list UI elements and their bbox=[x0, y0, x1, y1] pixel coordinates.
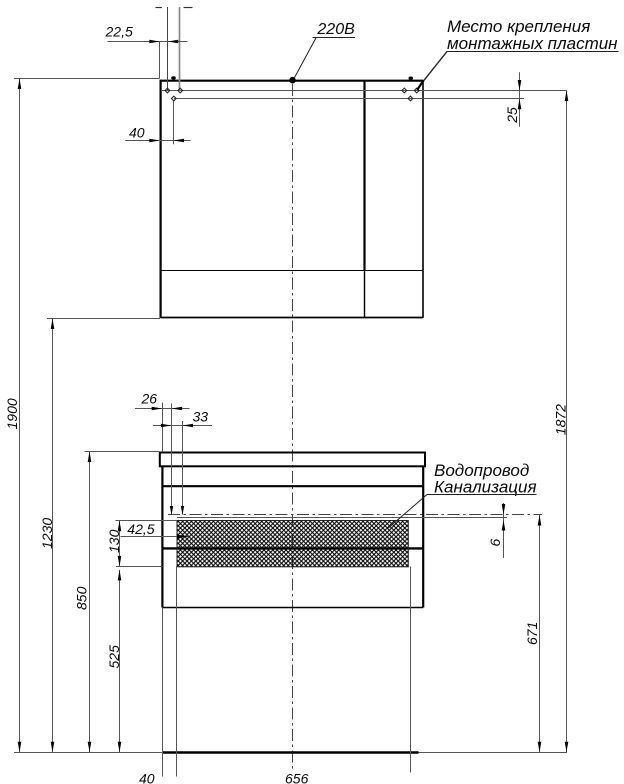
svg-text:40: 40 bbox=[129, 125, 145, 141]
svg-text:40: 40 bbox=[139, 771, 155, 784]
svg-text:33: 33 bbox=[193, 408, 209, 424]
svg-text:525: 525 bbox=[106, 645, 122, 669]
svg-text:850: 850 bbox=[74, 586, 90, 610]
svg-text:монтажных пластин: монтажных пластин bbox=[447, 34, 618, 53]
svg-text:671: 671 bbox=[524, 622, 540, 645]
svg-text:1900: 1900 bbox=[4, 398, 20, 429]
svg-text:6: 6 bbox=[487, 539, 503, 547]
svg-text:130: 130 bbox=[106, 529, 122, 553]
svg-text:Канализация: Канализация bbox=[434, 478, 537, 497]
svg-text:25: 25 bbox=[504, 107, 520, 124]
svg-text:26: 26 bbox=[141, 390, 158, 406]
svg-text:656: 656 bbox=[285, 771, 309, 784]
svg-text:1872: 1872 bbox=[552, 404, 568, 435]
svg-text:22,5: 22,5 bbox=[105, 24, 133, 40]
svg-text:220В: 220В bbox=[316, 21, 355, 38]
svg-text:1230: 1230 bbox=[39, 518, 55, 549]
svg-text:42,5: 42,5 bbox=[127, 521, 154, 537]
